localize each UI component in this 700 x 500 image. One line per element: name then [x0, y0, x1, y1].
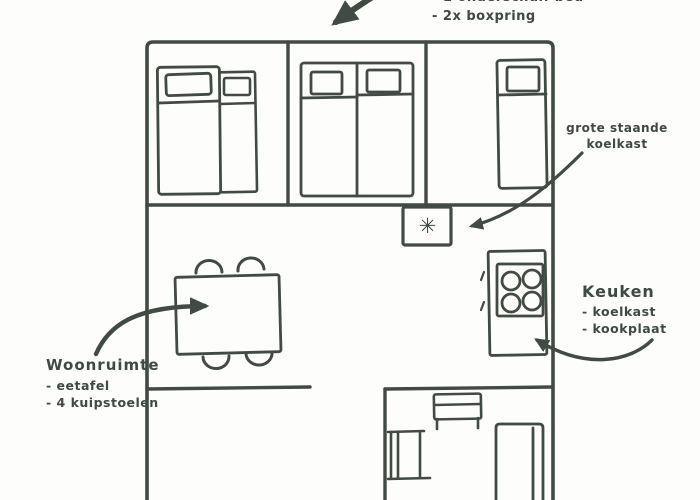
bathroom-vanity	[434, 394, 481, 429]
living-annotation: Woonruimte - eetafel - 4 kuipstoelen	[46, 357, 160, 411]
snowflake-icon: ✳	[404, 210, 451, 243]
bathroom-cabinet-right	[496, 424, 543, 500]
kitchen-annotation: Keuken - koelkast - kookplaat	[582, 283, 667, 337]
bed-single-back	[218, 72, 257, 193]
fridge-annotation: grote staande koelkast	[558, 120, 676, 152]
fridge-annotation-line2: koelkast	[558, 136, 676, 152]
beds-annotation-line2: - 2x boxpring	[432, 7, 584, 26]
living-title: Woonruimte	[46, 357, 160, 374]
kitchen-item: - kookplaat	[582, 320, 667, 337]
arrow-to-beds	[336, 0, 374, 22]
floor-plan-drawing	[0, 0, 700, 500]
kitchen-title: Keuken	[582, 283, 667, 300]
beds-annotation-line1: - 1 onderschuif bed	[432, 0, 584, 7]
dining-table	[175, 275, 281, 355]
living-item: - 4 kuipstoelen	[46, 394, 160, 411]
beds-annotation: - 1 onderschuif bed - 2x boxpring	[432, 0, 584, 26]
fridge-annotation-line1: grote staande	[558, 120, 676, 136]
bed-single-front	[157, 67, 220, 195]
bathroom-cabinet-left	[388, 431, 430, 479]
kitchen-item: - koelkast	[582, 303, 667, 320]
bed-double	[301, 63, 413, 196]
living-item: - eetafel	[46, 377, 160, 394]
floor-plan-sketch: ✳ - 1 onderschuif bed - 2x boxpring grot…	[0, 0, 700, 500]
bed-single-right	[497, 60, 547, 189]
